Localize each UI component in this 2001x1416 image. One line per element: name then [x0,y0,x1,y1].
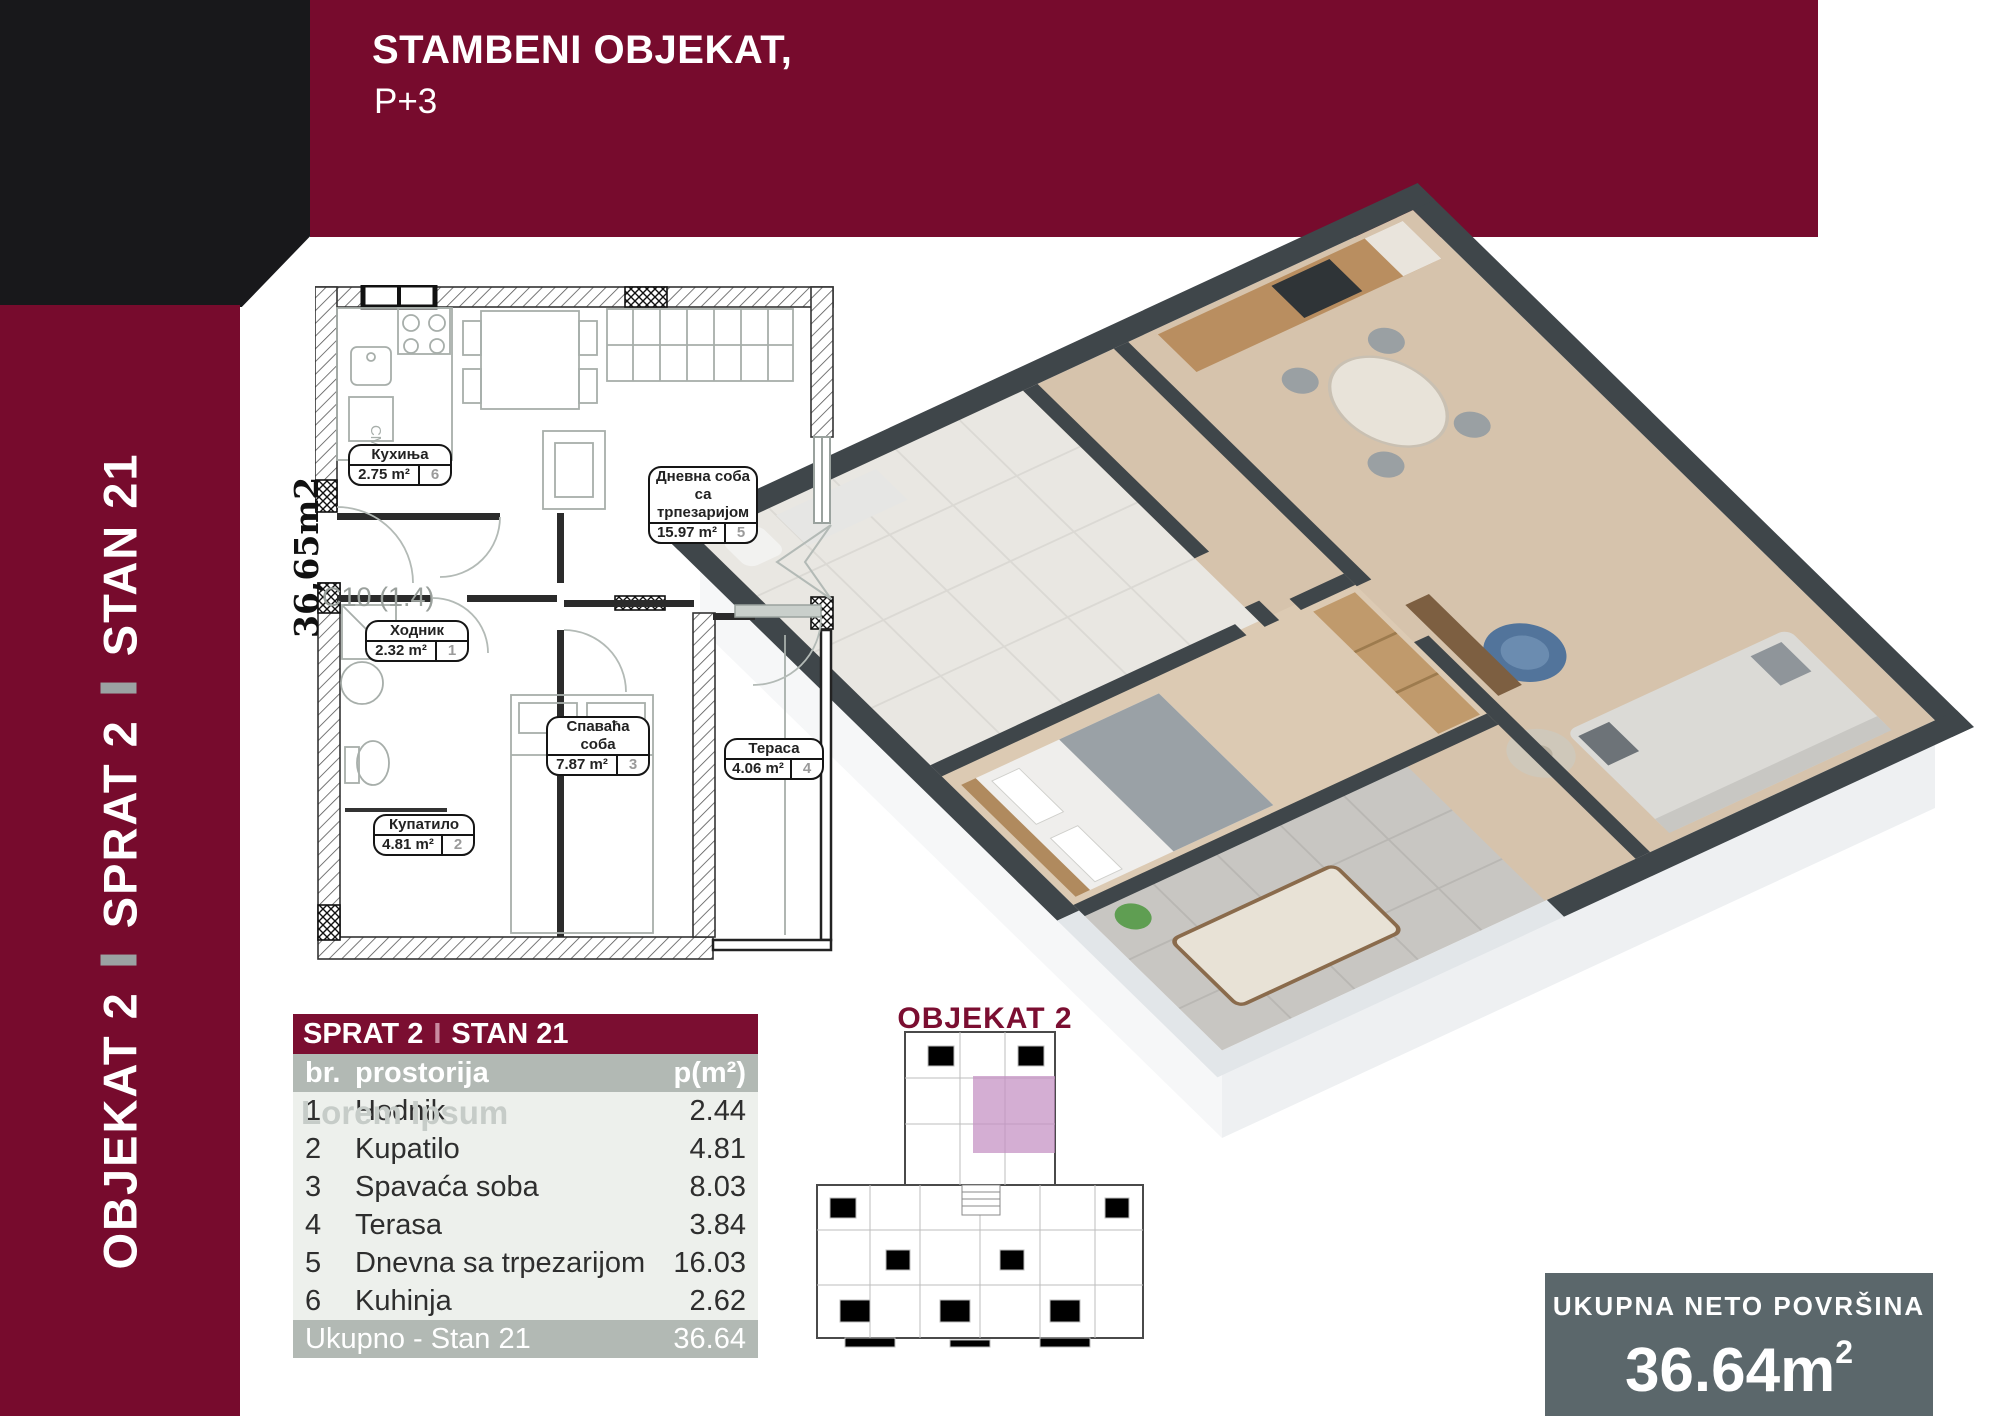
watermark: Lorem Ipsum [301,1094,508,1132]
plan-label-hodnik: Ходник 2.32 m²1 [365,620,469,662]
total-net-area-box: UKUPNA NETO POVRŠINA 36.64m2 [1545,1273,1933,1416]
corner-black-block [0,0,310,307]
separator-bar [101,682,137,693]
page-subtitle: P+3 [374,82,437,122]
col-header-room: prostorija [355,1054,648,1092]
brochure-page: STAMBENI OBJEKAT, P+3 OBJEKAT 2SPRAT 2ST… [0,0,2001,1416]
plan-label-terasa: Тераса 4.06 m²4 [724,738,824,780]
sidebar-segment-sprat: SPRAT 2 [94,719,147,928]
table-row: 6Kuhinja2.62 [293,1282,758,1320]
col-header-area: p(m²) [648,1054,758,1092]
plan-total-area-vertical: 36,65m2 [287,518,323,638]
separator-bar [101,954,137,965]
sidebar: OBJEKAT 2SPRAT 2STAN 21 [0,305,240,1416]
total-net-area-value: 36.64m2 [1545,1322,1933,1401]
area-table: Lorem Ipsum SPRAT 2ISTAN 21 br. prostori… [293,1014,758,1358]
table-footer-label: Ukupno - Stan 21 [293,1320,531,1358]
col-header-num: br. [293,1054,355,1092]
total-net-area-label: UKUPNA NETO POVRŠINA [1545,1291,1933,1322]
table-row: 3Spavaća soba8.03 [293,1168,758,1206]
table-footer-row: Ukupno - Stan 21 36.64 [293,1320,758,1358]
table-footer-value: 36.64 [648,1320,758,1358]
table-row: 5Dnevna sa trpezarijom16.03 [293,1244,758,1282]
plan-label-spavaca: Спаваћа соба 7.87 m²3 [546,716,650,776]
table-row: 2Kupatilo4.81 [293,1130,758,1168]
table-header-row: br. prostorija p(m²) [293,1054,758,1092]
plan-unit-code: C10 (1.4) [322,582,435,613]
keyplan-svg [800,1000,1160,1410]
plan-label-kuhinja: Кухиња 2.75 m²6 [348,444,452,486]
plan-label-dnevna: Дневна соба сатрпезаријом 15.97 m²5 [648,466,758,544]
terrace-wall [821,630,831,940]
sidebar-segment-objekat: OBJEKAT 2 [94,991,147,1269]
keyplan-highlight-unit [973,1076,1055,1153]
table-row: 4Terasa3.84 [293,1206,758,1244]
table-title: SPRAT 2ISTAN 21 [293,1014,758,1054]
page-title: STAMBENI OBJEKAT, [372,28,792,73]
sidebar-segment-stan: STAN 21 [94,452,147,656]
keyplan-title: OBJEKAT 2 [855,1002,1115,1036]
sidebar-vertical-label: OBJEKAT 2SPRAT 2STAN 21 [93,452,148,1269]
plan-label-kupatilo: Купатило 4.81 m²2 [373,814,475,856]
render-3d-floorplate [661,183,1974,1077]
